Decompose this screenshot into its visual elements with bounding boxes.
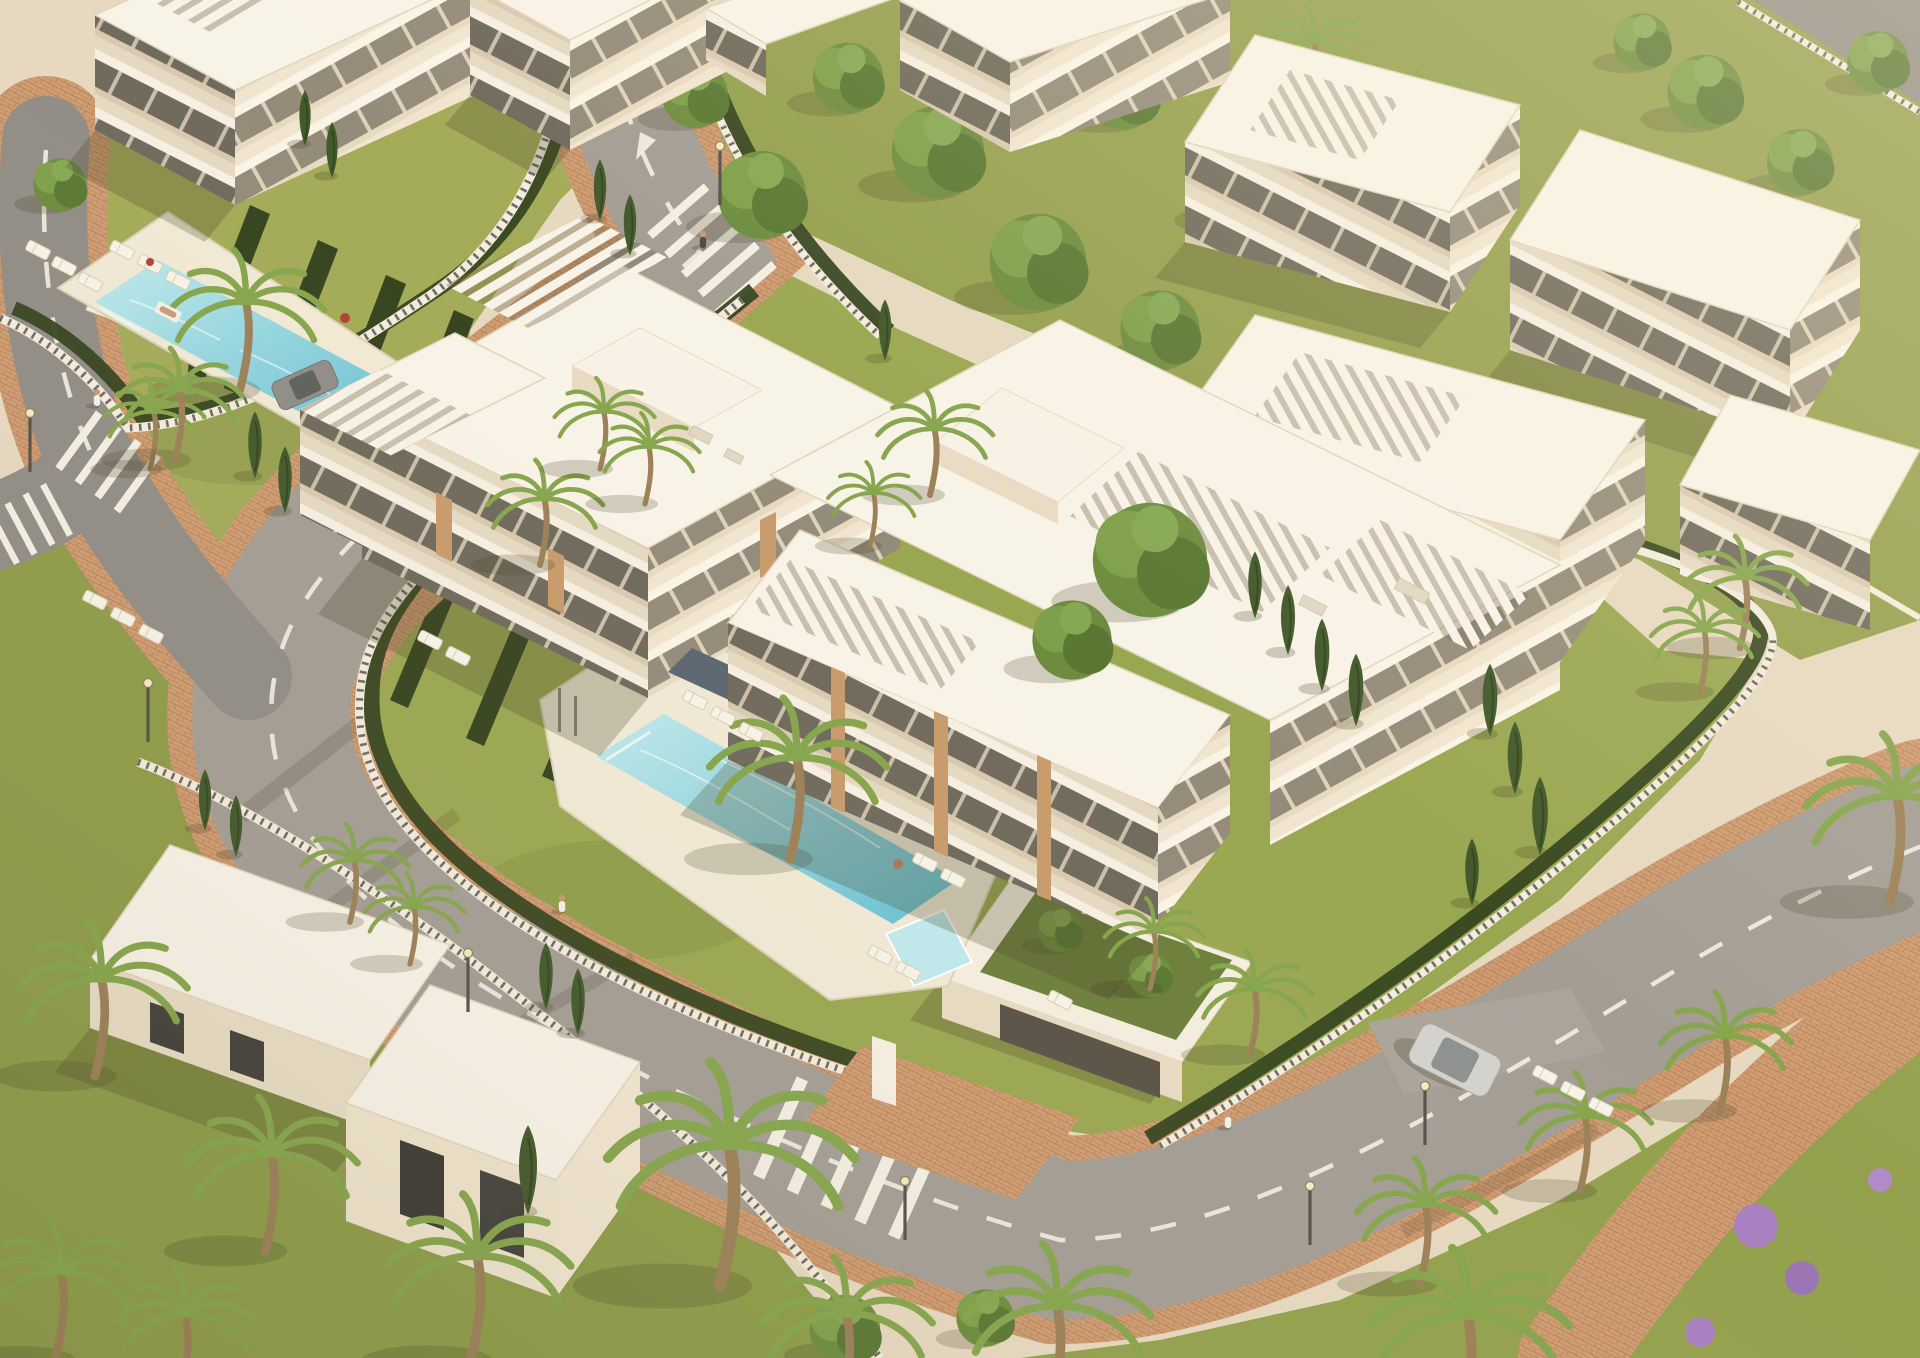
scene-canvas (0, 0, 1920, 1358)
aerial-render (0, 0, 1920, 1358)
sunlight-wash-overlay (0, 0, 1920, 1358)
